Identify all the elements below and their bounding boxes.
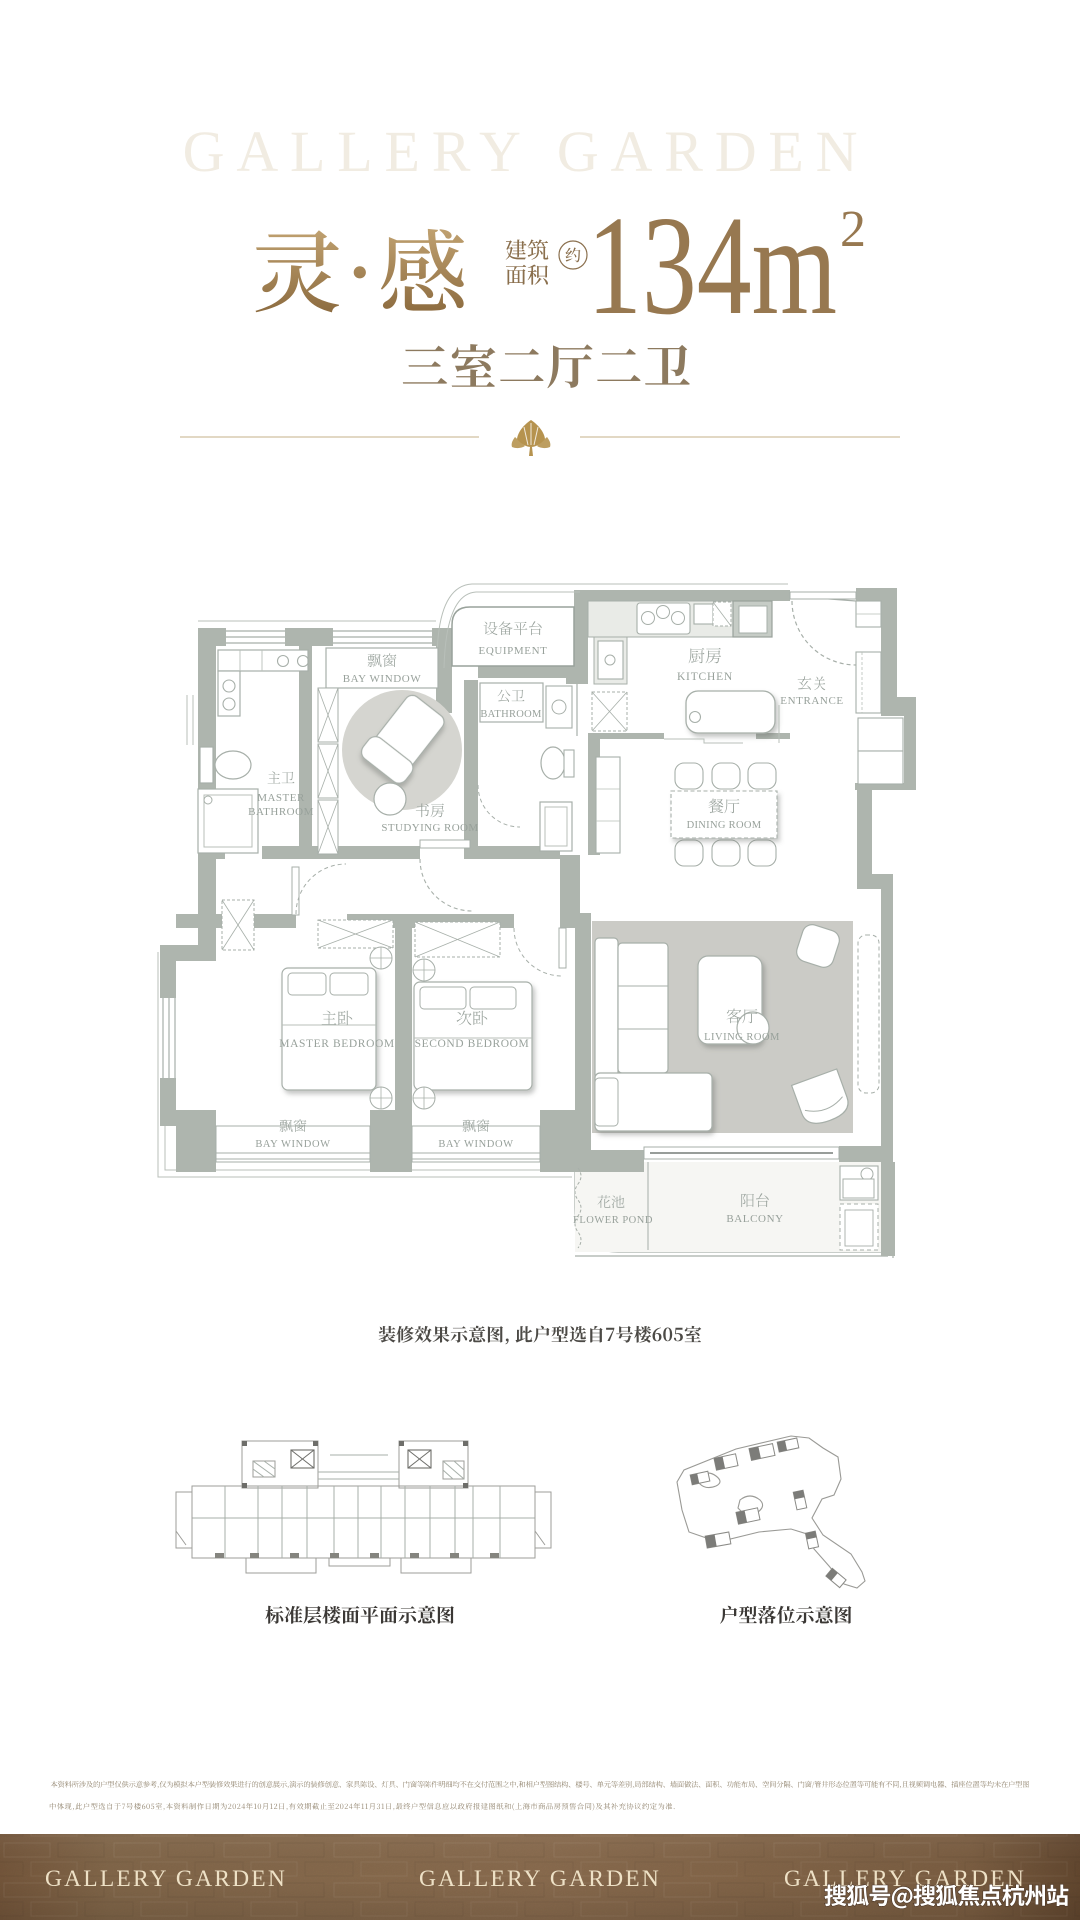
svg-text:ENTRANCE: ENTRANCE [780, 695, 843, 707]
svg-text:BAY WINDOW: BAY WINDOW [438, 1139, 513, 1150]
svg-text:GALLERY GARDEN: GALLERY GARDEN [419, 1866, 661, 1892]
svg-text:134m: 134m [587, 186, 837, 344]
svg-text:FLOWER POND: FLOWER POND [573, 1215, 653, 1226]
svg-text:BATHROOM: BATHROOM [480, 709, 542, 720]
svg-text:GALLERY GARDEN: GALLERY GARDEN [45, 1866, 287, 1892]
svg-text:EQUIPMENT: EQUIPMENT [479, 645, 548, 657]
svg-text:DINING ROOM: DINING ROOM [687, 820, 762, 831]
svg-text:MASTER BEDROOM: MASTER BEDROOM [279, 1038, 394, 1050]
svg-text:LIVING ROOM: LIVING ROOM [704, 1032, 780, 1043]
svg-text:BAY WINDOW: BAY WINDOW [255, 1139, 330, 1150]
svg-text:BALCONY: BALCONY [726, 1213, 783, 1225]
svg-text:STUDYING ROOM: STUDYING ROOM [381, 822, 478, 834]
svg-text:BAY WINDOW: BAY WINDOW [343, 673, 422, 685]
svg-text:MASTER: MASTER [257, 792, 305, 804]
svg-text:KITCHEN: KITCHEN [677, 671, 733, 683]
svg-text:SECOND BEDROOM: SECOND BEDROOM [415, 1038, 530, 1050]
svg-text:BATHROOM: BATHROOM [248, 806, 314, 818]
svg-text:GALLERY GARDEN: GALLERY GARDEN [183, 119, 870, 184]
svg-text:2: 2 [840, 201, 866, 258]
